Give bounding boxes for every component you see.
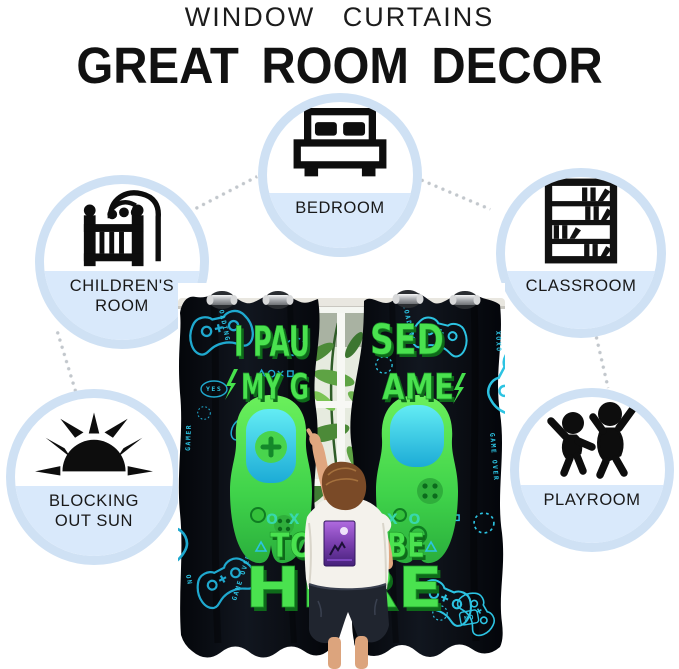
bed-icon xyxy=(267,102,413,187)
curtain-product-photo: LOADING LOADING GAMER GAME OVER GAME OVE… xyxy=(178,283,505,669)
page-title: GREAT ROOM DECOR xyxy=(24,36,655,95)
feature-label-band: PLAYROOM xyxy=(519,485,665,543)
slogan-part: MY G xyxy=(241,367,309,408)
feature-circle-playroom: PLAYROOM xyxy=(510,388,674,552)
dotted-connector xyxy=(412,174,491,211)
boy-leg xyxy=(355,636,368,669)
slogan-part: AME xyxy=(382,367,454,408)
feature-label: CHILDREN'S xyxy=(70,276,175,296)
shirt-print xyxy=(324,521,355,566)
feature-circle-blocking-out-sun: BLOCKING OUT SUN xyxy=(6,389,182,565)
dotted-connector xyxy=(594,335,611,389)
doodle-yes: YES xyxy=(206,385,222,393)
kicker-text: WINDOW CURTAINS xyxy=(0,2,679,33)
product-infographic: WINDOW CURTAINS GREAT ROOM DECOR BEDROOM xyxy=(0,0,679,669)
feature-label-band: BLOCKING OUT SUN xyxy=(15,486,173,556)
curtain-scene: LOADING LOADING GAMER GAME OVER GAME OVE… xyxy=(178,283,505,669)
feature-label: BEDROOM xyxy=(295,198,384,218)
doodle-gamer: GAMER xyxy=(184,424,193,451)
feature-label: ROOM xyxy=(95,296,149,316)
feature-label: CLASSROOM xyxy=(526,276,637,296)
feature-circle-bedroom: BEDROOM xyxy=(258,93,422,257)
kids-icon xyxy=(519,397,665,482)
slogan-part: I PAU xyxy=(234,317,310,366)
boy-leg xyxy=(328,637,341,669)
feature-label: OUT SUN xyxy=(55,511,133,531)
feature-label: BLOCKING xyxy=(49,491,139,511)
feature-label-band: BEDROOM xyxy=(267,193,413,248)
sun-icon xyxy=(15,398,173,490)
doodle-xoxo: XOXO xyxy=(494,331,503,353)
feature-label-band: CHILDREN'S ROOM xyxy=(44,271,200,340)
feature-label: PLAYROOM xyxy=(543,490,640,510)
crib-icon xyxy=(44,184,200,274)
feature-circle-classroom: CLASSROOM xyxy=(496,168,666,338)
feature-label-band: CLASSROOM xyxy=(505,271,657,329)
slogan-part: SED xyxy=(370,315,444,364)
bookshelf-icon xyxy=(505,177,657,265)
